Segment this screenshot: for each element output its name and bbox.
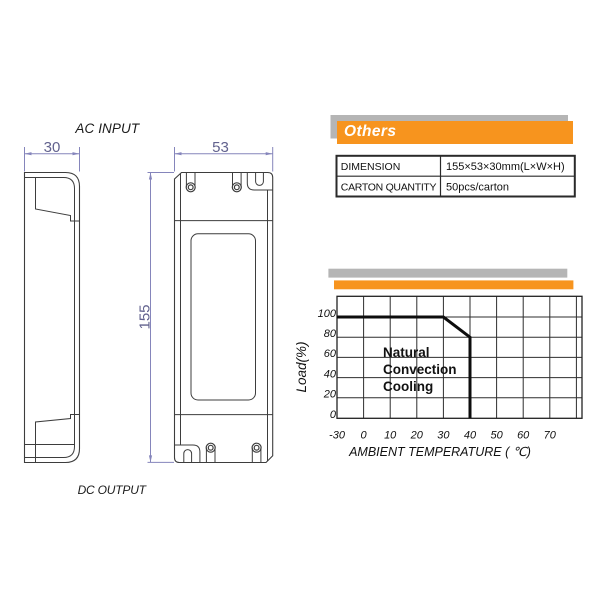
svg-text:10: 10 — [384, 430, 397, 442]
svg-text:80: 80 — [324, 328, 337, 340]
svg-text:-30: -30 — [329, 430, 346, 442]
svg-text:Cooling: Cooling — [383, 379, 433, 394]
svg-text:60: 60 — [517, 430, 530, 442]
svg-text:Load(%): Load(%) — [294, 341, 309, 392]
svg-text:40: 40 — [464, 430, 477, 442]
svg-text:0: 0 — [361, 430, 368, 442]
svg-text:Convection: Convection — [383, 362, 457, 377]
svg-text:40: 40 — [324, 368, 337, 380]
svg-text:Others: Others — [344, 123, 396, 140]
svg-text:DIMENSION: DIMENSION — [341, 161, 401, 173]
svg-text:Natural: Natural — [383, 345, 430, 360]
svg-text:0: 0 — [330, 409, 337, 421]
svg-text:20: 20 — [410, 430, 424, 442]
svg-text:53: 53 — [212, 139, 229, 156]
svg-text:20: 20 — [323, 389, 337, 401]
svg-text:AC INPUT: AC INPUT — [74, 121, 140, 136]
svg-text:100: 100 — [318, 308, 337, 320]
svg-text:155: 155 — [137, 304, 154, 329]
svg-text:30: 30 — [437, 430, 450, 442]
svg-text:50pcs/carton: 50pcs/carton — [446, 181, 509, 193]
svg-text:CARTON QUANTITY: CARTON QUANTITY — [341, 181, 437, 193]
svg-text:DC OUTPUT: DC OUTPUT — [78, 483, 148, 497]
svg-text:60: 60 — [324, 348, 337, 360]
svg-text:30: 30 — [44, 139, 61, 156]
svg-text:155×53×30mm(L×W×H): 155×53×30mm(L×W×H) — [446, 161, 565, 173]
svg-text:AMBIENT TEMPERATURE ( ℃): AMBIENT TEMPERATURE ( ℃) — [348, 445, 531, 459]
svg-text:50: 50 — [490, 430, 503, 442]
svg-text:70: 70 — [544, 430, 557, 442]
